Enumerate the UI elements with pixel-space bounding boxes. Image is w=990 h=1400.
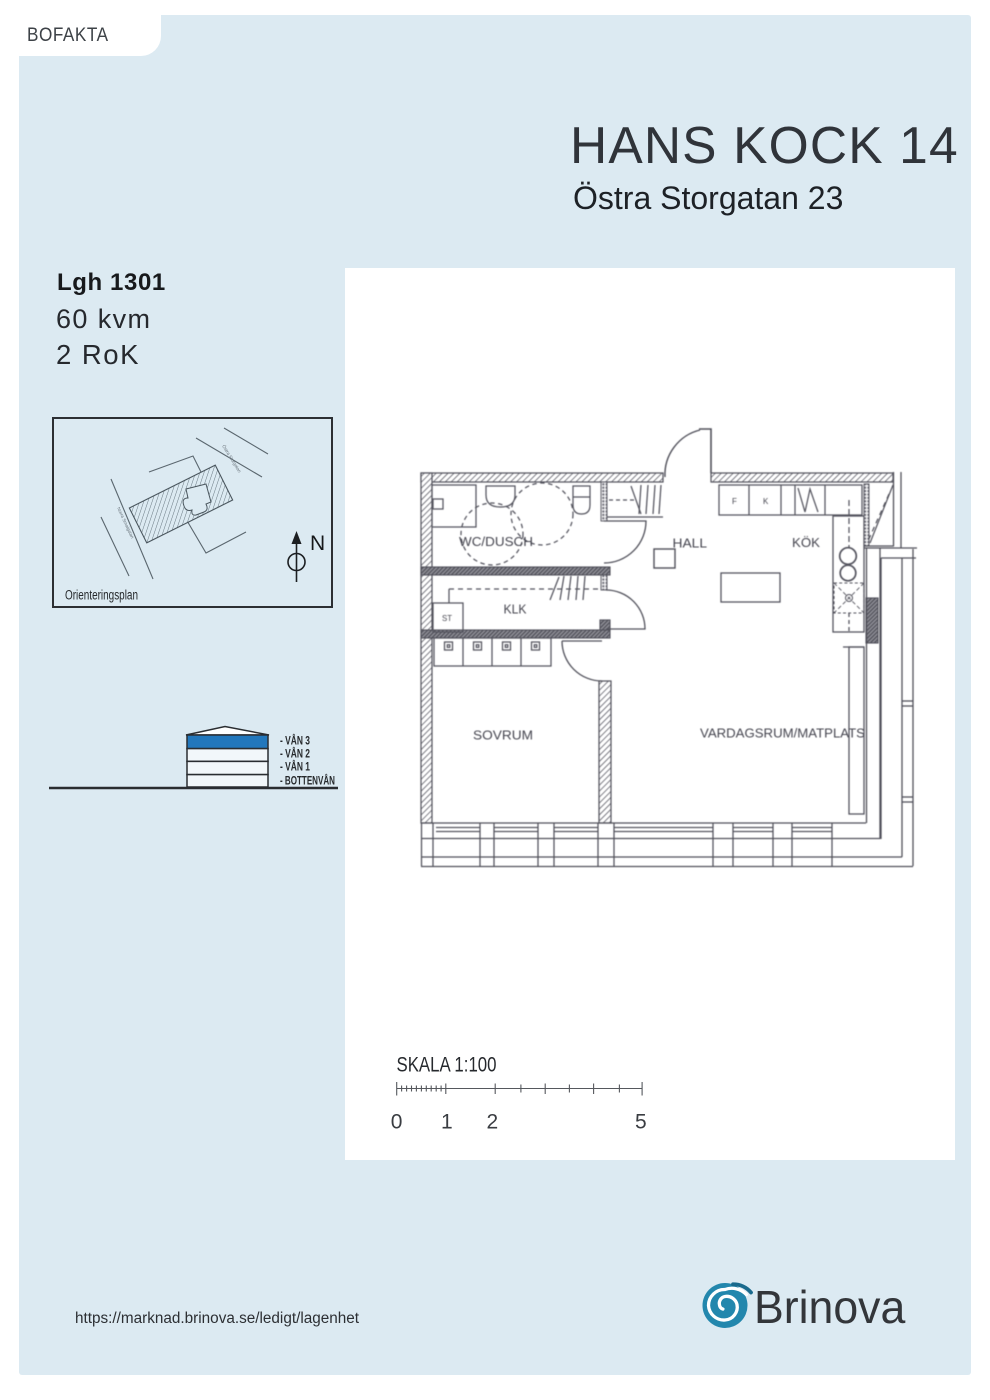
svg-text:KÖK: KÖK: [792, 535, 820, 550]
svg-text:KLK: KLK: [504, 603, 528, 617]
svg-text:5: 5: [635, 1111, 647, 1134]
svg-text:ST: ST: [442, 613, 452, 623]
svg-text:0: 0: [391, 1111, 403, 1134]
svg-text:SOVRUM: SOVRUM: [473, 728, 533, 743]
svg-text:1: 1: [441, 1111, 453, 1134]
svg-text:VARDAGSRUM/MATPLATS: VARDAGSRUM/MATPLATS: [700, 726, 865, 741]
svg-text:Östra Storgatan: Östra Storgatan: [221, 443, 243, 474]
svg-text:Orienteringsplan: Orienteringsplan: [65, 588, 138, 603]
svg-text:- VÅN 3: - VÅN 3: [280, 735, 310, 748]
svg-text:HALL: HALL: [673, 536, 708, 551]
svg-text:K: K: [763, 497, 769, 506]
svg-text:- BOTTENVÅN: - BOTTENVÅN: [280, 775, 335, 788]
svg-text:F: F: [732, 497, 737, 506]
svg-text:SKALA 1:100: SKALA 1:100: [397, 1053, 497, 1077]
svg-text:- VÅN 2: - VÅN 2: [280, 748, 310, 761]
svg-text:2: 2: [487, 1111, 499, 1134]
svg-text:- VÅN 1: - VÅN 1: [280, 761, 310, 774]
svg-text:WC/DUSCH: WC/DUSCH: [459, 534, 533, 549]
